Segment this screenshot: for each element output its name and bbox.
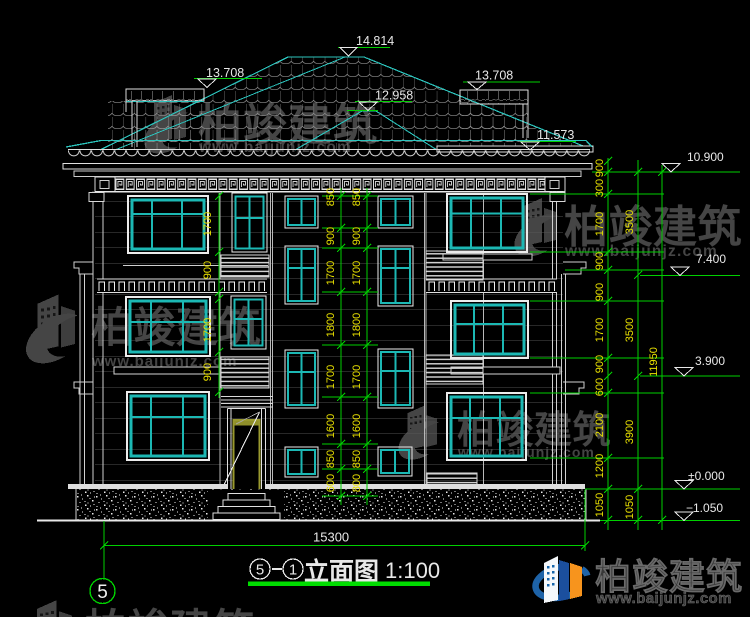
svg-text:柏竣建筑: 柏竣建筑 [85,606,255,617]
svg-text:1700: 1700 [351,365,363,389]
svg-text:900: 900 [202,261,214,279]
svg-text:850: 850 [351,450,363,468]
svg-text:1800: 1800 [325,313,337,337]
svg-text:www.baijunjz.com: www.baijunjz.com [595,590,732,607]
svg-text:3500: 3500 [624,210,636,234]
svg-text:1:100: 1:100 [385,558,440,583]
svg-text:900: 900 [594,283,606,301]
svg-text:600: 600 [325,474,337,492]
svg-text:1700: 1700 [351,261,363,285]
svg-text:5: 5 [97,582,108,603]
svg-text:800: 800 [351,474,363,492]
svg-text:1800: 1800 [351,313,363,337]
svg-text:850: 850 [325,450,337,468]
svg-text:1: 1 [289,562,297,579]
svg-text:1600: 1600 [351,414,363,438]
svg-text:14.814: 14.814 [356,34,394,48]
svg-text:13.708: 13.708 [206,66,244,80]
svg-text:−1.050: −1.050 [686,501,723,515]
svg-text:11950: 11950 [648,347,660,377]
svg-text:1700: 1700 [202,212,214,236]
svg-text:1050: 1050 [594,493,606,517]
svg-text:1700: 1700 [325,261,337,285]
svg-text:11.573: 11.573 [537,128,574,142]
svg-text:1700: 1700 [594,318,606,342]
svg-text:±0.000: ±0.000 [688,469,725,483]
svg-text:7.400: 7.400 [696,252,726,266]
svg-text:3900: 3900 [624,420,636,444]
svg-text:600: 600 [594,378,606,396]
svg-text:3.900: 3.900 [695,354,725,368]
svg-text:900: 900 [594,159,606,177]
svg-text:1200: 1200 [594,454,606,478]
svg-text:1050: 1050 [624,495,636,519]
svg-text:1700: 1700 [325,365,337,389]
svg-text:850: 850 [325,188,337,206]
svg-text:1600: 1600 [325,414,337,438]
svg-text:5: 5 [256,562,264,579]
svg-text:2100: 2100 [594,413,606,437]
svg-text:900: 900 [594,355,606,373]
svg-text:900: 900 [594,252,606,270]
svg-text:3500: 3500 [624,318,636,342]
svg-text:13.708: 13.708 [475,69,513,83]
svg-text:850: 850 [351,188,363,206]
svg-text:10.900: 10.900 [687,150,724,164]
svg-text:1700: 1700 [594,212,606,236]
svg-text:300: 300 [594,179,606,197]
svg-text:12.958: 12.958 [375,89,413,103]
svg-text:900: 900 [325,227,337,245]
svg-text:900: 900 [351,227,363,245]
svg-text:900: 900 [202,363,214,381]
svg-text:1700: 1700 [202,318,214,342]
svg-text:15300: 15300 [313,530,349,545]
